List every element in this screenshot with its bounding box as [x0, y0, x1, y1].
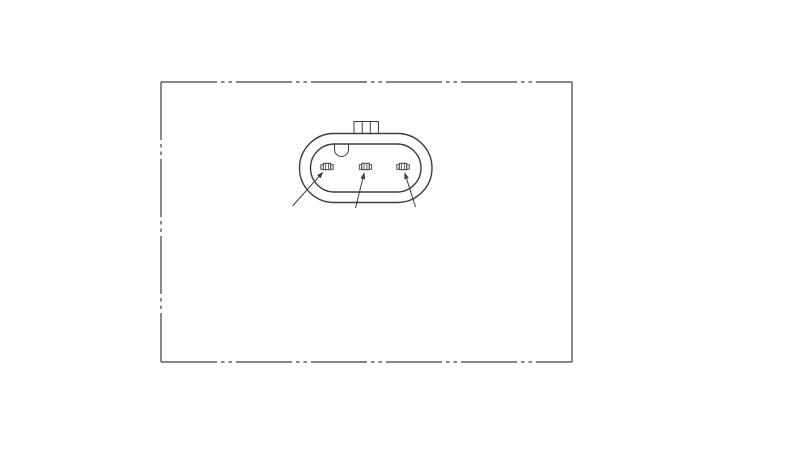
- pin-body-1: [323, 163, 330, 169]
- connector-technical-drawing: [0, 0, 800, 451]
- pin-body-2: [362, 163, 369, 169]
- drawing-canvas: [0, 0, 800, 451]
- latch-tab: [354, 122, 379, 135]
- pin-body-3: [399, 163, 406, 169]
